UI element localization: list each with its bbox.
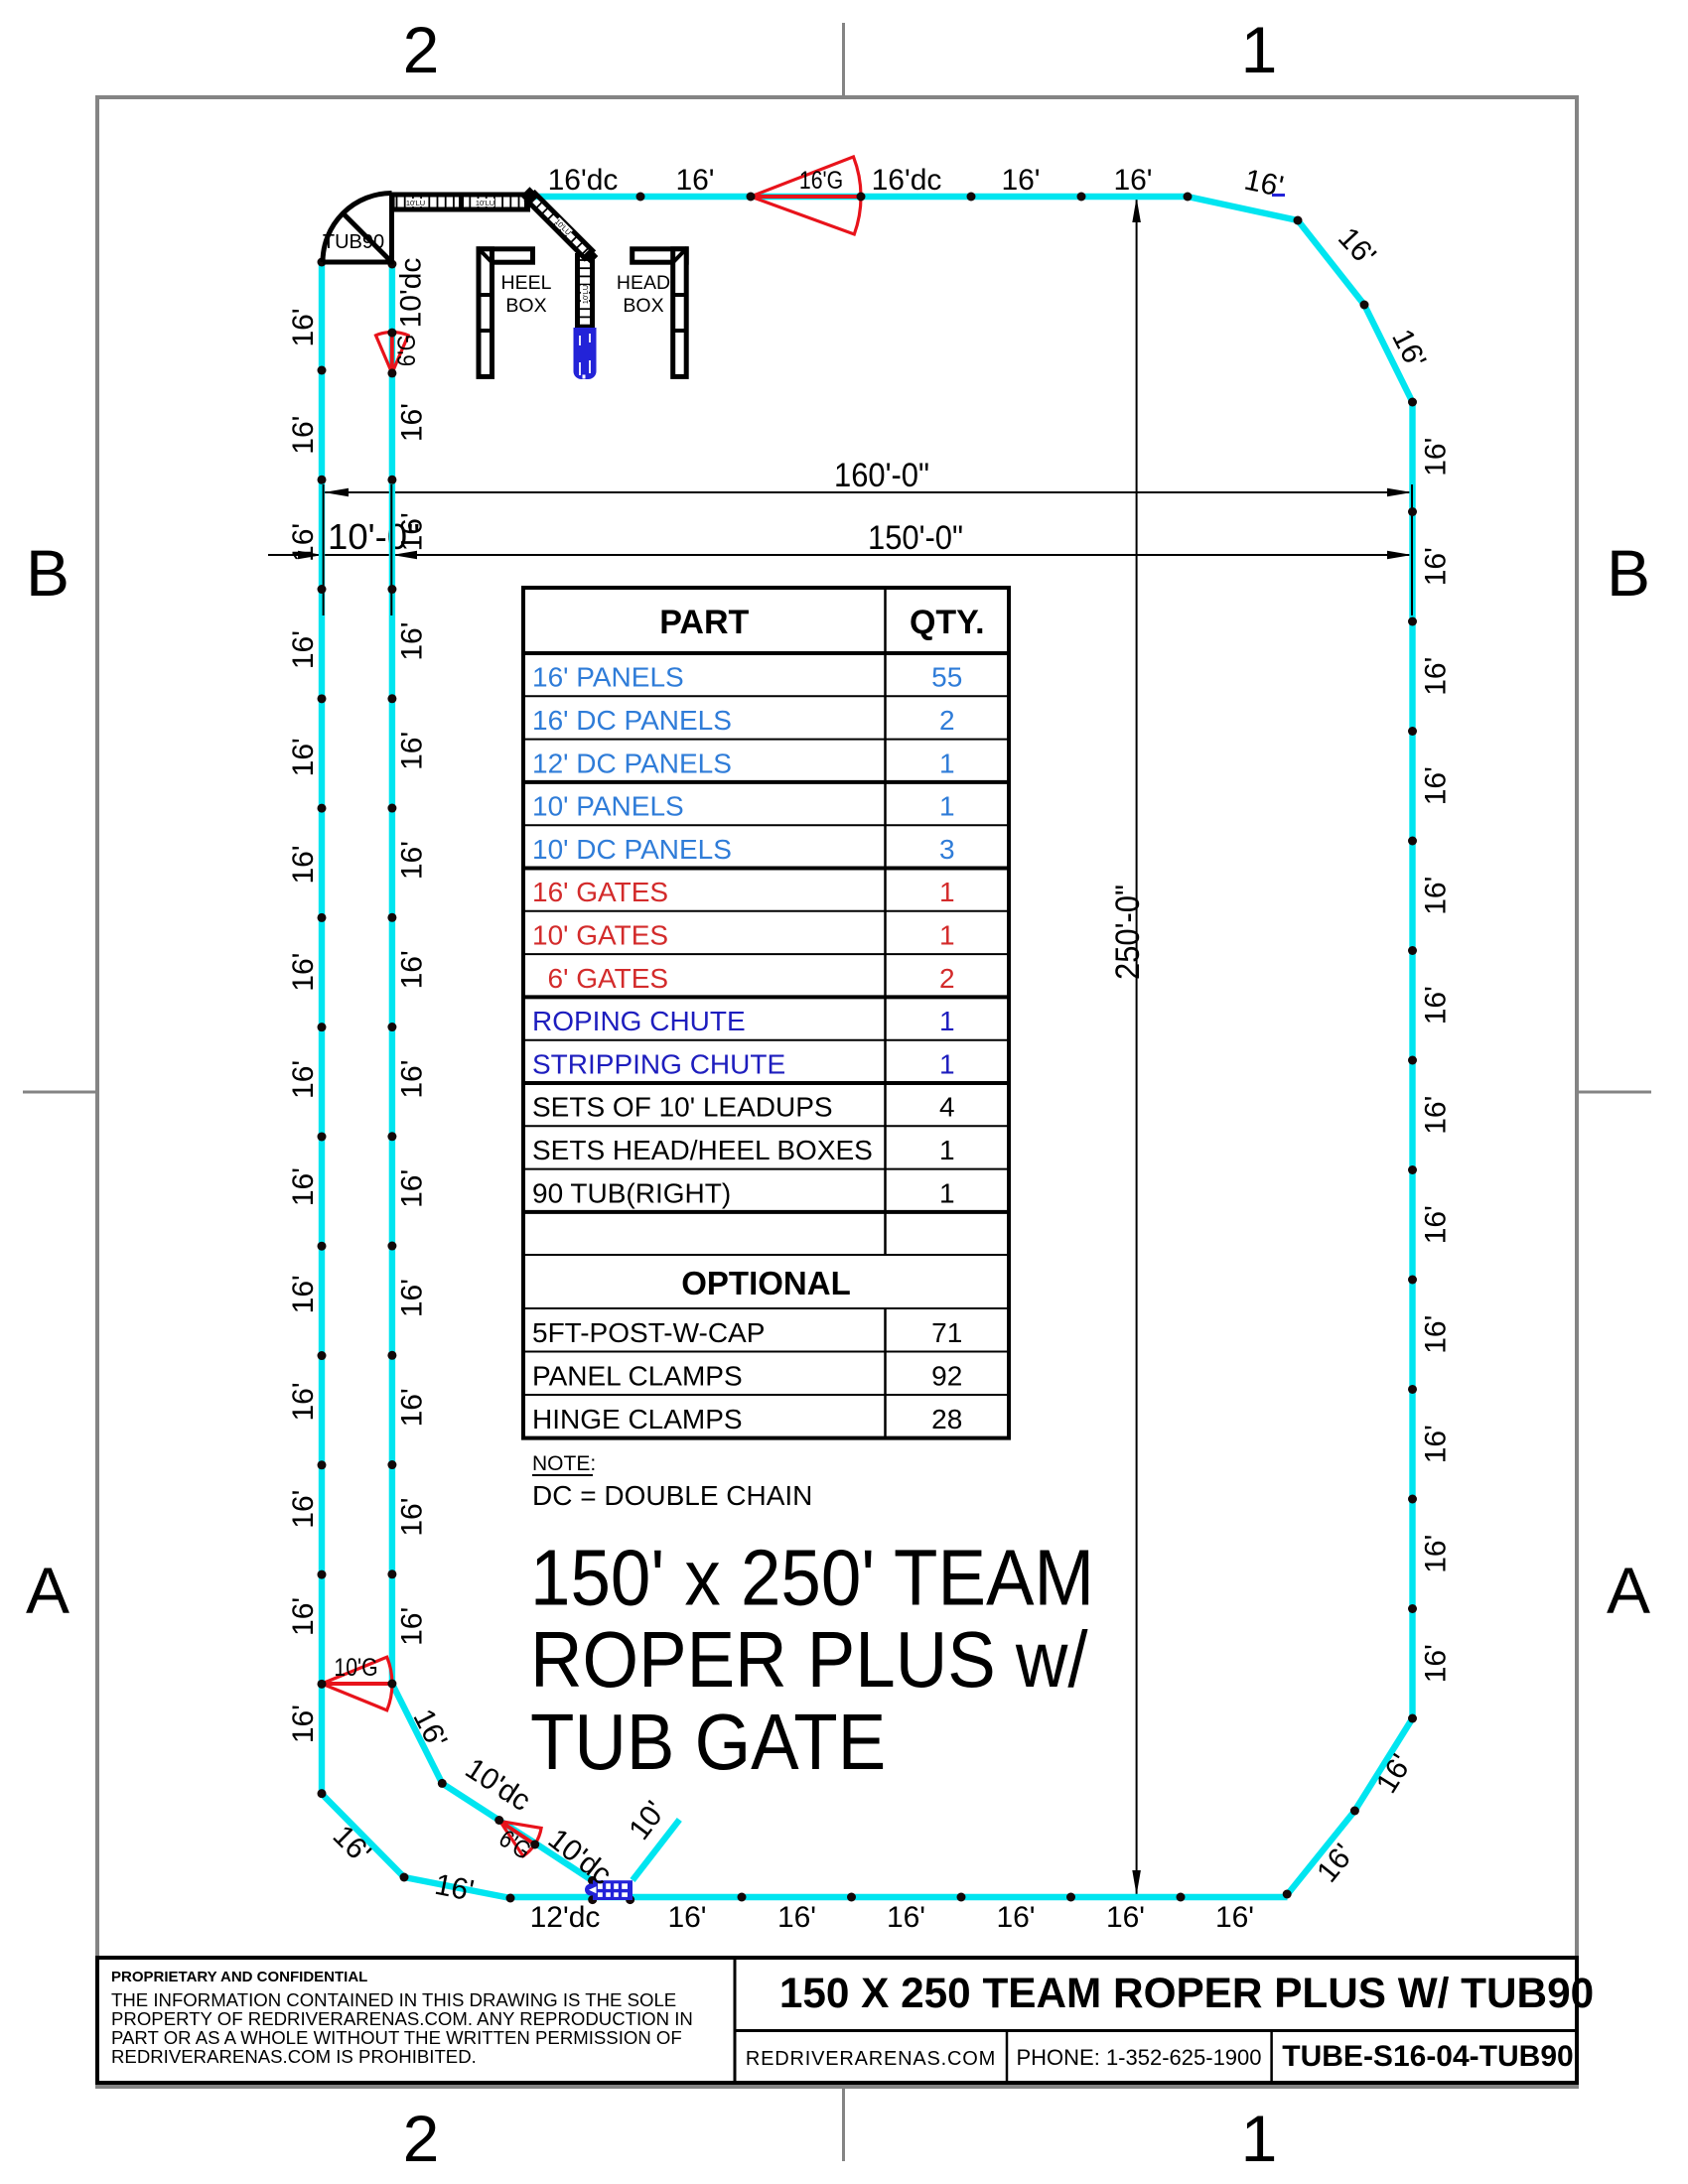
svg-text:10'LU: 10'LU [406,199,425,207]
svg-text:16': 16' [395,1169,428,1208]
svg-text:1: 1 [939,1135,955,1165]
svg-text:16': 16' [1419,1535,1452,1573]
svg-text:16': 16' [395,950,428,989]
svg-text:1: 1 [939,1006,955,1036]
svg-text:16': 16' [1419,766,1452,805]
svg-text:16': 16' [1419,1205,1452,1244]
svg-text:16': 16' [287,630,320,669]
svg-text:6'G: 6'G [392,335,420,366]
svg-text:16': 16' [287,953,320,992]
svg-text:SETS HEAD/HEEL BOXES: SETS HEAD/HEEL BOXES [532,1135,873,1165]
svg-text:10'dc: 10'dc [394,258,427,329]
svg-text:12'dc: 12'dc [530,1901,601,1934]
svg-text:B: B [26,536,70,610]
svg-text:TUB GATE: TUB GATE [530,1699,886,1787]
svg-text:16': 16' [395,512,428,551]
svg-text:16': 16' [1106,1901,1145,1934]
svg-text:16': 16' [287,738,320,776]
svg-text:16': 16' [287,1597,320,1636]
svg-text:16': 16' [287,308,320,346]
svg-text:16': 16' [395,403,428,442]
svg-text:16' GATES: 16' GATES [532,877,668,907]
svg-text:16'G: 16'G [799,166,843,194]
svg-text:16': 16' [996,1901,1035,1934]
svg-text:REDRIVERARENAS.COM: REDRIVERARENAS.COM [746,2048,996,2070]
svg-text:150'-0": 150'-0" [868,519,963,557]
svg-text:1: 1 [939,791,955,822]
svg-text:B: B [1607,536,1650,610]
svg-text:16': 16' [395,1607,428,1646]
svg-text:5FT-POST-W-CAP: 5FT-POST-W-CAP [532,1317,765,1348]
svg-text:16': 16' [1001,164,1040,197]
svg-text:3: 3 [939,834,955,865]
svg-text:16': 16' [287,1382,320,1421]
svg-text:TUBE-S16-04-TUB90: TUBE-S16-04-TUB90 [1282,2040,1573,2073]
svg-text:1: 1 [939,877,955,907]
svg-text:16': 16' [287,1167,320,1206]
svg-text:16': 16' [395,622,428,661]
svg-text:16': 16' [777,1901,816,1934]
svg-text:1: 1 [939,919,955,950]
svg-text:16' PANELS: 16' PANELS [532,662,684,693]
svg-text:1: 1 [1241,13,1278,86]
svg-text:10'G: 10'G [334,1653,377,1681]
svg-text:SETS OF 10' LEADUPS: SETS OF 10' LEADUPS [532,1092,833,1123]
svg-text:ROPING CHUTE: ROPING CHUTE [532,1006,746,1036]
svg-text:DC = DOUBLE CHAIN: DC = DOUBLE CHAIN [532,1480,812,1511]
svg-text:1: 1 [939,1177,955,1208]
svg-text:16': 16' [287,1060,320,1099]
svg-text:BOX: BOX [623,295,663,317]
svg-text:A: A [1607,1554,1650,1627]
svg-text:16': 16' [1113,164,1152,197]
svg-text:16': 16' [287,1275,320,1313]
svg-text:HEAD: HEAD [617,272,670,294]
svg-text:NOTE:: NOTE: [532,1452,596,1475]
svg-text:16': 16' [1419,1315,1452,1354]
svg-text:PROPERTY OF REDRIVERARENAS.COM: PROPERTY OF REDRIVERARENAS.COM. ANY REPR… [111,2008,693,2029]
svg-text:90 TUB(RIGHT): 90 TUB(RIGHT) [532,1177,731,1208]
svg-text:16': 16' [395,1388,428,1427]
svg-text:92: 92 [931,1360,962,1391]
svg-text:55: 55 [931,662,962,693]
svg-text:4: 4 [939,1092,955,1123]
svg-text:REDRIVERARENAS.COM IS PROHIBIT: REDRIVERARENAS.COM IS PROHIBITED. [111,2046,477,2067]
svg-text:28: 28 [931,1404,962,1434]
svg-text:250'-0": 250'-0" [1109,885,1147,980]
svg-text:PART OR AS A WHOLE WITHOUT THE: PART OR AS A WHOLE WITHOUT THE WRITTEN P… [111,2027,682,2048]
svg-text:12' DC PANELS: 12' DC PANELS [532,748,732,778]
svg-text:QTY.: QTY. [910,604,985,641]
svg-text:16'dc: 16'dc [872,164,942,197]
svg-text:HEEL: HEEL [501,272,552,294]
svg-text:16': 16' [287,416,320,455]
svg-text:16': 16' [1419,877,1452,915]
svg-text:16': 16' [1419,1425,1452,1463]
svg-text:6' GATES: 6' GATES [532,963,668,994]
svg-text:HINGE CLAMPS: HINGE CLAMPS [532,1404,743,1434]
svg-text:16': 16' [1419,657,1452,696]
svg-text:160'-0": 160'-0" [834,457,929,494]
svg-text:1: 1 [939,748,955,778]
svg-text:2: 2 [939,963,955,994]
svg-text:16': 16' [1215,1901,1254,1934]
svg-text:16': 16' [887,1901,925,1934]
svg-text:16': 16' [1419,986,1452,1024]
svg-text:10'LU: 10'LU [581,285,590,304]
svg-text:PROPRIETARY AND CONFIDENTIAL: PROPRIETARY AND CONFIDENTIAL [111,1969,367,1985]
svg-text:16': 16' [395,1498,428,1537]
svg-text:16': 16' [395,1279,428,1317]
svg-text:BOX: BOX [505,295,546,317]
svg-text:PART: PART [659,604,749,641]
svg-text:16': 16' [395,732,428,770]
svg-text:16': 16' [395,1060,428,1099]
svg-text:16': 16' [1419,438,1452,477]
svg-text:ROPER PLUS w/: ROPER PLUS w/ [530,1616,1088,1705]
svg-text:16': 16' [1419,1096,1452,1135]
svg-text:10' PANELS: 10' PANELS [532,791,684,822]
svg-text:16': 16' [287,1490,320,1529]
svg-text:2: 2 [403,13,440,86]
svg-text:16': 16' [667,1901,706,1934]
svg-text:10' DC PANELS: 10' DC PANELS [532,834,732,865]
svg-text:THE INFORMATION CONTAINED IN T: THE INFORMATION CONTAINED IN THIS DRAWIN… [111,1989,676,2010]
svg-text:16': 16' [675,164,714,197]
svg-text:16'dc: 16'dc [548,164,619,197]
svg-text:PHONE: 1-352-625-1900: PHONE: 1-352-625-1900 [1016,2045,1261,2070]
svg-text:16': 16' [287,523,320,562]
svg-text:TUB90: TUB90 [323,231,384,253]
svg-text:150 X 250 TEAM ROPER PLUS W/ T: 150 X 250 TEAM ROPER PLUS W/ TUB90 [779,1970,1594,2016]
svg-text:16': 16' [1419,1644,1452,1683]
svg-text:16': 16' [395,841,428,880]
svg-text:16' DC PANELS: 16' DC PANELS [532,705,732,736]
svg-text:1: 1 [939,1048,955,1079]
svg-text:STRIPPING CHUTE: STRIPPING CHUTE [532,1048,785,1079]
svg-text:OPTIONAL: OPTIONAL [681,1265,851,1301]
svg-text:2: 2 [403,2102,440,2175]
svg-text:2: 2 [939,705,955,736]
svg-text:16': 16' [287,1705,320,1743]
svg-text:16': 16' [287,845,320,884]
svg-text:1: 1 [1241,2102,1278,2175]
svg-text:A: A [26,1554,70,1627]
svg-text:71: 71 [931,1317,962,1348]
svg-text:16': 16' [1419,547,1452,586]
svg-text:10'LU: 10'LU [476,199,494,207]
svg-text:PANEL CLAMPS: PANEL CLAMPS [532,1360,743,1391]
svg-text:10' GATES: 10' GATES [532,919,668,950]
svg-text:150' x 250' TEAM: 150' x 250' TEAM [530,1534,1094,1622]
